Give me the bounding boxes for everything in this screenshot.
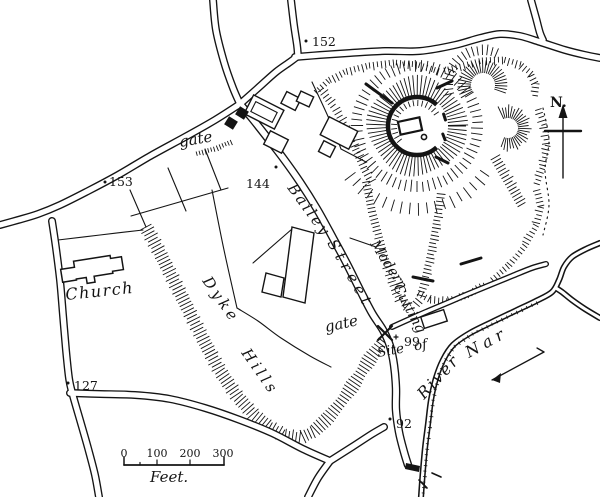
- spot-height-99: 99: [404, 334, 420, 349]
- motte-keep: [388, 97, 446, 155]
- spot-height-dot: [275, 166, 278, 169]
- scale-unit-feet: Feet.: [149, 468, 188, 486]
- scale-tick-0: 0: [121, 447, 128, 460]
- scale-tick-300: 300: [213, 447, 234, 460]
- spot-height-127: 127: [74, 378, 98, 393]
- spot-height-92: 92: [396, 416, 412, 431]
- spot-height-153: 153: [109, 174, 133, 189]
- flow-arrowhead: [492, 373, 501, 383]
- spot-height-dot: [305, 40, 308, 43]
- spot-height-dot: [389, 418, 392, 421]
- castle-site-plan: gate gate Bailey Street Modern Cutting S…: [0, 0, 600, 497]
- well-mark: [421, 134, 426, 139]
- label-hills: Hills: [237, 344, 283, 398]
- scale-bar: [124, 457, 224, 465]
- scale-tick-200: 200: [180, 447, 201, 460]
- map-labels: gate gate Bailey Street Modern Cutting S…: [64, 34, 566, 486]
- ring-gap-dashes: [443, 114, 446, 140]
- hachure-ticks: [141, 45, 551, 446]
- north-arrow: [545, 104, 581, 178]
- map-linework: [0, 0, 600, 497]
- label-gate-upper: gate: [178, 127, 214, 151]
- spot-height-dot: [104, 181, 107, 184]
- label-river: River: [412, 351, 463, 404]
- spot-height-152: 152: [312, 34, 336, 49]
- site-plan-svg: gate gate Bailey Street Modern Cutting S…: [0, 0, 600, 497]
- label-dyke: Dyke: [198, 272, 243, 326]
- building-long: [283, 227, 314, 303]
- label-gate-lower: gate: [323, 311, 360, 336]
- plus-mark-99: [394, 335, 398, 339]
- label-north: N.: [550, 95, 567, 111]
- label-church: Church: [64, 278, 134, 304]
- building-annex: [262, 273, 284, 297]
- spot-height-dot: [67, 382, 70, 385]
- label-nar: Nar: [461, 322, 511, 361]
- spot-height-144: 144: [246, 176, 270, 191]
- river-sluice: [405, 463, 420, 472]
- scale-tick-100: 100: [147, 447, 168, 460]
- earthwork-hachures: [141, 45, 551, 446]
